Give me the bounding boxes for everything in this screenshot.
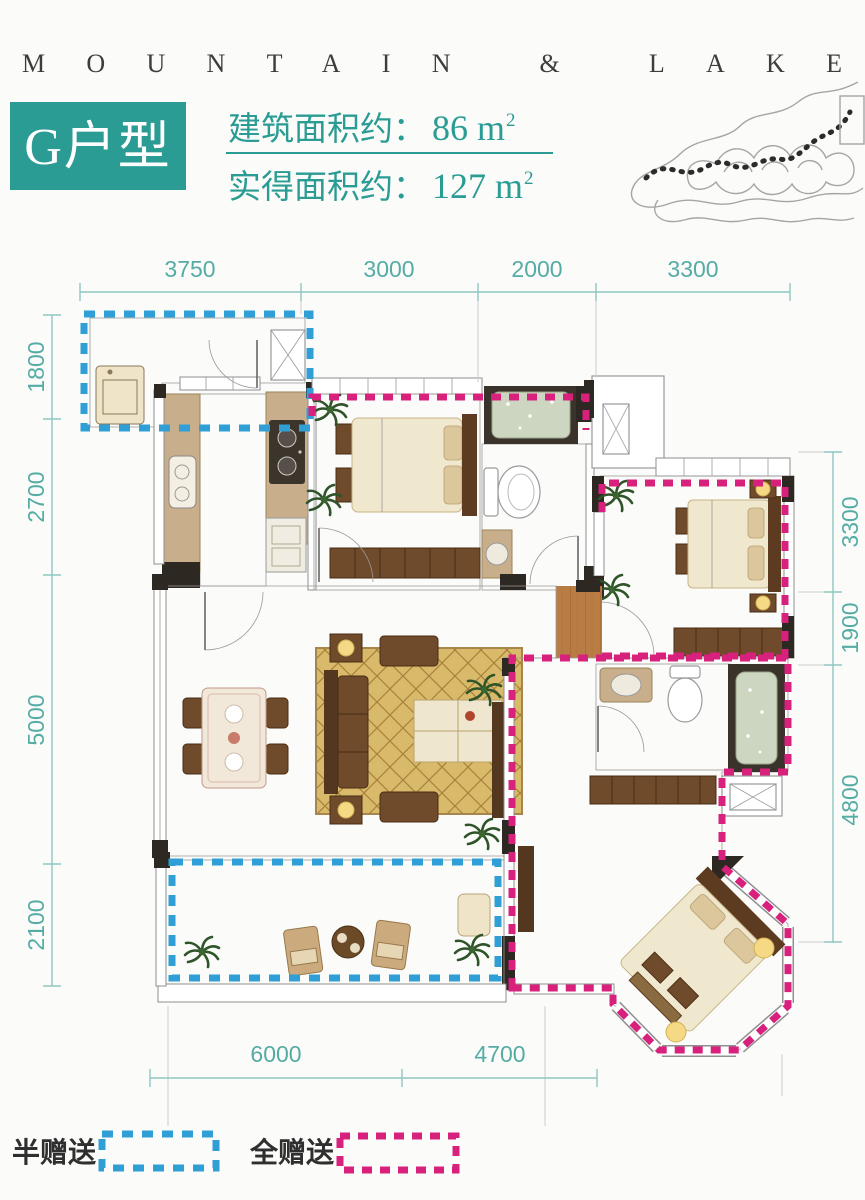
door-icon <box>598 706 644 752</box>
bathtub-icon <box>728 664 785 772</box>
dim-label: 2100 <box>23 899 49 950</box>
bathroom-1 <box>482 386 596 590</box>
dimension-left: 1800 2700 5000 2100 <box>23 315 61 986</box>
half-gift-outline-balcony <box>172 862 498 978</box>
kitchen <box>154 382 316 590</box>
dimension-right: 3300 1900 4800 <box>824 452 863 942</box>
bedroom-3 <box>592 458 794 658</box>
actual-area-line: 实得面积约：127 m2 <box>228 166 534 206</box>
palm-plant-icon <box>455 935 489 965</box>
living-dining-room <box>152 574 600 858</box>
floor-plan-page: MOUNTAIN & LAKE G户型 建筑面积约：86 m2 实得面积约：12… <box>0 0 865 1200</box>
bay-window <box>656 458 790 476</box>
lamp-icon <box>756 596 770 610</box>
door-icon <box>600 602 654 656</box>
utility-zone <box>584 376 664 468</box>
lounge-chair-icon <box>371 920 411 970</box>
legend-label-half-gift: 半赠送 <box>12 1136 96 1169</box>
floor-plan-canvas: MOUNTAIN & LAKE G户型 建筑面积约：86 m2 实得面积约：12… <box>0 0 865 1200</box>
floor-plan <box>84 314 794 1051</box>
dimension-top: 3750 3000 2000 3300 <box>80 256 790 301</box>
header: G户型 建筑面积约：86 m2 实得面积约：127 m2 <box>10 102 553 206</box>
sofa-set-icon <box>316 634 522 824</box>
dim-label: 1900 <box>837 602 863 653</box>
dim-label: 4700 <box>474 1041 525 1067</box>
bay-window <box>312 378 482 394</box>
legend-swatch-full-gift <box>340 1136 456 1170</box>
bedroom-2 <box>307 378 482 590</box>
lounge-chair-icon <box>283 926 323 976</box>
toilet-icon <box>668 666 702 722</box>
legend: 半赠送 全赠送 <box>12 1134 456 1170</box>
brand-title: MOUNTAIN & LAKE <box>22 49 842 78</box>
lamp-icon <box>754 938 774 958</box>
toilet-icon <box>484 466 540 518</box>
legend-label-full-gift: 全赠送 <box>249 1136 334 1169</box>
coffee-table-icon <box>414 700 502 762</box>
dim-label: 5000 <box>23 694 49 745</box>
entry-door-icon <box>205 592 263 650</box>
dim-label: 2700 <box>23 471 49 522</box>
door-icon <box>530 536 578 584</box>
dim-label: 3750 <box>164 256 215 282</box>
vanity-sink-icon <box>482 530 512 578</box>
dimension-bottom: 6000 4700 <box>150 1041 597 1087</box>
dim-label: 1800 <box>23 341 49 392</box>
duct-shaft-icon <box>722 776 782 816</box>
legend-swatch-half-gift <box>102 1134 216 1168</box>
master-suite <box>502 658 788 1051</box>
building-area-line: 建筑面积约：86 m2 <box>228 108 516 148</box>
bed-icon <box>336 414 477 516</box>
window <box>594 512 604 576</box>
tv-console-icon <box>518 846 534 932</box>
side-table-icon <box>332 926 364 958</box>
dining-set-icon <box>183 688 288 788</box>
sink-icon <box>169 456 196 508</box>
dim-label: 2000 <box>511 256 562 282</box>
washer-icon <box>96 366 144 424</box>
dim-label: 3000 <box>363 256 414 282</box>
bathroom-2 <box>596 664 785 772</box>
palm-plant-icon <box>465 819 499 849</box>
dim-label: 3300 <box>837 496 863 547</box>
bed-icon <box>676 496 781 592</box>
unit-label: G户型 <box>24 119 172 176</box>
wardrobe-icon <box>330 548 480 578</box>
wardrobe-icon <box>674 628 786 656</box>
fridge-icon <box>266 518 306 572</box>
dim-label: 6000 <box>250 1041 301 1067</box>
hallway <box>556 586 602 658</box>
mat-icon <box>458 894 490 936</box>
location-map-sketch <box>631 82 864 222</box>
palm-plant-icon <box>185 937 219 967</box>
wardrobe-icon <box>590 776 716 804</box>
dim-label: 4800 <box>837 774 863 825</box>
dim-label: 3300 <box>667 256 718 282</box>
vanity-sink-icon <box>600 668 652 702</box>
lamp-icon <box>666 1022 686 1042</box>
kitchen-window <box>180 377 260 390</box>
